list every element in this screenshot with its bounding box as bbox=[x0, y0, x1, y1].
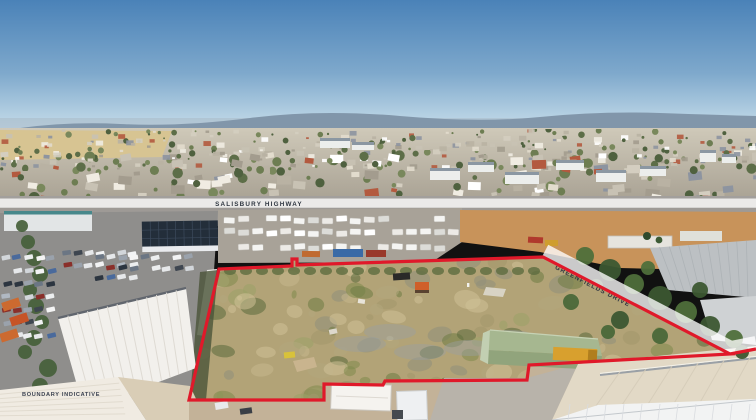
scenery bbox=[557, 139, 561, 142]
scenery bbox=[288, 167, 291, 170]
scenery bbox=[242, 147, 250, 152]
scenery bbox=[260, 149, 263, 151]
scenery bbox=[396, 183, 402, 187]
caravan bbox=[322, 244, 333, 250]
caravan bbox=[266, 215, 277, 221]
scenery bbox=[169, 141, 175, 147]
scenery bbox=[409, 135, 415, 141]
scenery bbox=[632, 148, 639, 153]
scenery bbox=[2, 139, 9, 144]
scenery bbox=[145, 160, 150, 165]
scenery bbox=[0, 167, 3, 170]
scenery bbox=[513, 185, 522, 191]
shed-row bbox=[608, 236, 672, 248]
tree bbox=[692, 282, 708, 298]
salisbury-highway-band bbox=[0, 199, 756, 208]
scenery bbox=[118, 163, 122, 167]
scenery bbox=[87, 147, 92, 152]
scrub-row bbox=[432, 267, 444, 275]
scenery bbox=[658, 139, 663, 144]
site-sign bbox=[393, 272, 410, 280]
caravan bbox=[336, 243, 347, 249]
scenery bbox=[671, 166, 677, 170]
scenery bbox=[598, 158, 606, 163]
scenery bbox=[203, 141, 210, 146]
caravan bbox=[293, 218, 304, 225]
scenery bbox=[253, 140, 255, 142]
scenery bbox=[690, 166, 698, 174]
scenery bbox=[92, 165, 95, 167]
scenery bbox=[146, 129, 150, 133]
scenery bbox=[446, 144, 450, 147]
scenery bbox=[532, 160, 546, 169]
scenery bbox=[561, 156, 566, 160]
caravan bbox=[336, 231, 347, 237]
scenery bbox=[603, 188, 608, 191]
scenery bbox=[148, 133, 150, 135]
scrub-row bbox=[512, 267, 524, 275]
scrub-row bbox=[368, 267, 380, 275]
scenery bbox=[315, 143, 320, 147]
scenery bbox=[72, 179, 79, 186]
caravan bbox=[238, 244, 249, 250]
scenery bbox=[637, 154, 642, 157]
scenery bbox=[317, 132, 323, 138]
yellow-car bbox=[284, 351, 296, 358]
scenery bbox=[6, 134, 12, 138]
caravan bbox=[350, 229, 361, 235]
scenery bbox=[478, 136, 481, 138]
tree bbox=[563, 294, 579, 310]
scenery bbox=[416, 146, 422, 150]
scenery bbox=[306, 137, 309, 139]
scenery bbox=[158, 161, 164, 165]
caravan bbox=[224, 217, 235, 224]
scenery bbox=[685, 137, 687, 139]
caravan bbox=[392, 229, 403, 235]
scenery bbox=[482, 142, 488, 146]
scenery bbox=[18, 174, 24, 180]
scenery bbox=[359, 152, 368, 161]
scenery bbox=[695, 159, 699, 163]
scenery bbox=[303, 147, 306, 149]
scenery bbox=[407, 167, 415, 172]
scenery bbox=[19, 156, 24, 159]
scenery bbox=[177, 144, 185, 149]
caravan-yard bbox=[218, 208, 462, 263]
scenery bbox=[308, 154, 314, 158]
scrub-row bbox=[336, 267, 348, 275]
scenery bbox=[206, 131, 210, 133]
caravan bbox=[252, 244, 263, 251]
scenery bbox=[578, 131, 585, 138]
scenery bbox=[120, 150, 123, 152]
tree bbox=[18, 345, 32, 359]
scenery bbox=[633, 140, 639, 144]
scenery bbox=[312, 165, 314, 167]
scenery bbox=[269, 189, 279, 196]
scrub-row bbox=[528, 267, 540, 275]
scenery bbox=[529, 158, 533, 160]
scenery bbox=[402, 138, 406, 142]
scenery bbox=[490, 144, 495, 147]
scenery bbox=[172, 168, 182, 178]
scenery bbox=[510, 157, 523, 165]
caravan bbox=[392, 243, 403, 250]
scenery bbox=[557, 188, 565, 196]
scenery bbox=[657, 178, 671, 187]
scenery bbox=[553, 139, 556, 141]
scenery bbox=[234, 168, 243, 177]
scenery bbox=[104, 166, 109, 171]
scenery bbox=[271, 133, 273, 135]
scenery bbox=[351, 172, 359, 177]
scenery bbox=[652, 128, 658, 134]
caravan bbox=[238, 230, 249, 236]
palm-tree bbox=[643, 232, 651, 240]
scenery bbox=[98, 147, 104, 153]
scenery bbox=[18, 150, 23, 155]
scenery bbox=[293, 181, 306, 190]
scenery bbox=[643, 157, 646, 159]
scenery bbox=[195, 130, 197, 132]
scenery bbox=[439, 146, 446, 151]
caravan bbox=[308, 231, 319, 237]
apartment-roof bbox=[700, 150, 716, 153]
scenery bbox=[180, 149, 186, 153]
scenery bbox=[188, 158, 190, 160]
scenery bbox=[297, 163, 300, 165]
red-container bbox=[528, 237, 543, 244]
tree bbox=[641, 261, 655, 275]
scenery bbox=[96, 141, 103, 146]
scenery bbox=[15, 157, 19, 160]
scenery bbox=[451, 132, 453, 134]
scenery bbox=[118, 140, 124, 144]
scenery bbox=[608, 152, 617, 161]
scenery bbox=[666, 166, 669, 169]
caravan bbox=[294, 230, 305, 236]
scenery bbox=[599, 144, 603, 147]
scenery bbox=[305, 158, 314, 164]
scenery bbox=[297, 151, 304, 156]
scenery bbox=[213, 152, 219, 156]
scenery bbox=[472, 147, 479, 151]
scenery bbox=[455, 143, 461, 147]
scenery bbox=[594, 137, 602, 142]
scenery bbox=[655, 154, 663, 162]
scenery bbox=[48, 136, 52, 139]
scenery bbox=[503, 136, 510, 141]
scenery bbox=[372, 136, 376, 139]
scenery bbox=[75, 152, 80, 157]
apartment-roof bbox=[505, 172, 539, 175]
scenery bbox=[609, 144, 615, 150]
scenery bbox=[521, 142, 524, 145]
caravan bbox=[308, 217, 319, 223]
scenery bbox=[707, 140, 713, 146]
scenery bbox=[220, 152, 225, 155]
caravan bbox=[252, 228, 263, 235]
scenery bbox=[306, 176, 310, 180]
scenery bbox=[372, 161, 378, 167]
caravan bbox=[224, 228, 235, 234]
scenery bbox=[22, 165, 28, 171]
scenery bbox=[468, 182, 481, 190]
scenery bbox=[189, 150, 195, 156]
apartment-roof bbox=[468, 162, 494, 165]
caravan bbox=[406, 229, 417, 235]
scenery bbox=[92, 135, 98, 139]
scenery bbox=[61, 189, 68, 196]
scenery bbox=[34, 149, 39, 154]
scrub-row bbox=[304, 267, 316, 275]
scenery bbox=[99, 155, 103, 158]
scrub-row bbox=[480, 267, 492, 275]
scenery bbox=[163, 137, 165, 139]
scenery bbox=[106, 129, 111, 134]
showroom-roof bbox=[142, 220, 218, 248]
scenery bbox=[154, 188, 158, 192]
scenery bbox=[220, 157, 228, 162]
scenery bbox=[512, 142, 518, 146]
apartment-roof bbox=[596, 170, 626, 173]
scenery bbox=[327, 158, 333, 164]
tree bbox=[16, 220, 28, 232]
scenery bbox=[351, 139, 356, 142]
caravan bbox=[420, 244, 431, 250]
scenery bbox=[583, 158, 593, 168]
scenery bbox=[508, 153, 512, 156]
scenery bbox=[586, 168, 593, 175]
scenery bbox=[544, 148, 546, 150]
scenery bbox=[682, 157, 688, 161]
scenery bbox=[196, 163, 202, 167]
boundary-disclaimer-label: BOUNDARY INDICATIVE bbox=[22, 392, 100, 398]
apartment-roof bbox=[722, 154, 736, 157]
tree bbox=[652, 328, 668, 344]
scenery bbox=[442, 154, 447, 157]
scenery bbox=[564, 131, 569, 134]
scenery bbox=[723, 185, 734, 193]
scenery bbox=[276, 167, 284, 175]
scenery bbox=[322, 159, 327, 162]
scenery bbox=[653, 146, 658, 149]
scenery bbox=[453, 183, 461, 191]
scenery bbox=[717, 136, 722, 139]
caravan bbox=[280, 245, 291, 251]
scenery bbox=[384, 164, 387, 167]
scenery bbox=[577, 143, 582, 146]
scenery bbox=[171, 185, 185, 194]
caravan bbox=[238, 216, 249, 222]
scenery bbox=[134, 171, 140, 175]
yellow-container bbox=[545, 240, 558, 246]
caravan bbox=[420, 228, 431, 234]
scenery bbox=[514, 165, 518, 169]
caravan bbox=[448, 229, 459, 236]
scenery bbox=[292, 149, 295, 151]
scenery bbox=[33, 164, 38, 168]
scenery bbox=[408, 148, 411, 151]
stony-ground bbox=[364, 324, 416, 340]
scenery bbox=[347, 165, 353, 169]
scenery bbox=[118, 134, 125, 139]
scenery bbox=[147, 145, 151, 147]
scenery bbox=[11, 162, 17, 168]
scenery bbox=[664, 159, 669, 164]
scenery bbox=[87, 168, 91, 172]
caravan bbox=[350, 218, 361, 225]
scenery bbox=[172, 157, 175, 159]
scenery bbox=[700, 165, 705, 170]
scenery bbox=[18, 146, 20, 148]
caravan bbox=[308, 246, 319, 252]
scenery bbox=[36, 135, 40, 138]
scenery bbox=[66, 153, 72, 159]
scenery bbox=[260, 187, 267, 194]
scenery bbox=[43, 155, 49, 159]
scenery bbox=[586, 139, 592, 143]
scenery bbox=[247, 166, 252, 171]
scenery bbox=[528, 140, 530, 142]
scenery bbox=[87, 142, 92, 145]
apartment-roof bbox=[352, 142, 374, 145]
scenery bbox=[732, 146, 736, 148]
scenery bbox=[65, 131, 71, 137]
tree bbox=[39, 359, 57, 377]
aerial-photo: SALISBURY HIGHWAY GREENFIELDS DRIVE BOUN… bbox=[0, 0, 756, 420]
scenery bbox=[118, 176, 132, 185]
scrub-row bbox=[496, 267, 508, 275]
scenery bbox=[480, 129, 484, 133]
scenery bbox=[670, 158, 676, 162]
scenery bbox=[476, 134, 478, 136]
caravan bbox=[364, 229, 375, 235]
scenery bbox=[641, 136, 644, 139]
caravan bbox=[280, 228, 291, 235]
scenery bbox=[379, 142, 381, 144]
scenery bbox=[416, 136, 422, 140]
scrub-row bbox=[416, 267, 428, 275]
scenery bbox=[290, 158, 295, 163]
scenery bbox=[150, 139, 155, 142]
scenery bbox=[722, 131, 726, 135]
scenery bbox=[28, 182, 38, 189]
caravan bbox=[294, 243, 305, 250]
scenery bbox=[608, 189, 618, 196]
scenery bbox=[277, 176, 291, 185]
scenery bbox=[677, 135, 684, 139]
scenery bbox=[272, 157, 281, 166]
scenery bbox=[50, 160, 57, 164]
scenery bbox=[163, 155, 170, 160]
scenery bbox=[295, 132, 298, 134]
scenery bbox=[497, 147, 505, 152]
scenery bbox=[528, 129, 534, 133]
scenery bbox=[191, 133, 197, 137]
scenery bbox=[387, 161, 392, 166]
apartment-roof bbox=[320, 138, 350, 141]
caravan bbox=[322, 228, 333, 235]
scenery bbox=[382, 137, 387, 140]
scrub-row bbox=[288, 267, 300, 275]
scrub-row bbox=[352, 267, 364, 275]
caravan bbox=[434, 229, 445, 235]
scenery bbox=[261, 137, 268, 142]
palm-tree bbox=[656, 237, 663, 244]
scenery bbox=[627, 165, 640, 173]
scenery bbox=[0, 152, 8, 157]
caravan bbox=[378, 216, 389, 223]
scenery bbox=[392, 183, 396, 187]
scenery bbox=[171, 179, 177, 185]
scenery bbox=[577, 149, 583, 155]
caravan bbox=[322, 218, 333, 224]
scrub-row bbox=[448, 267, 460, 275]
scenery bbox=[364, 170, 378, 179]
scenery bbox=[749, 146, 755, 150]
scenery bbox=[387, 140, 391, 142]
scenery bbox=[563, 136, 567, 140]
apartment-roof bbox=[430, 168, 460, 171]
scenery bbox=[150, 166, 159, 175]
caravan bbox=[266, 230, 277, 237]
scenery bbox=[233, 130, 239, 134]
scenery bbox=[262, 153, 268, 157]
scenery bbox=[365, 165, 368, 167]
scenery bbox=[168, 149, 171, 152]
apartment-roof bbox=[640, 166, 666, 169]
scenery bbox=[256, 166, 264, 174]
scenery bbox=[158, 131, 161, 134]
scrub-row bbox=[464, 267, 476, 275]
scenery bbox=[497, 188, 502, 193]
scenery bbox=[552, 131, 556, 135]
scenery bbox=[142, 163, 145, 166]
caravan bbox=[336, 215, 347, 221]
red-container bbox=[366, 250, 386, 257]
scenery bbox=[171, 130, 177, 136]
aerial-photo-canvas: SALISBURY HIGHWAY GREENFIELDS DRIVE BOUN… bbox=[0, 0, 756, 420]
scenery bbox=[47, 143, 52, 146]
scenery bbox=[76, 162, 85, 171]
scenery bbox=[622, 138, 626, 142]
scenery bbox=[598, 153, 606, 158]
stony-ground bbox=[394, 344, 446, 360]
scenery bbox=[532, 144, 534, 146]
scenery bbox=[548, 184, 559, 191]
scenery bbox=[172, 160, 184, 168]
scenery bbox=[37, 184, 46, 193]
scenery bbox=[350, 131, 357, 136]
shed-row bbox=[680, 231, 722, 241]
scenery bbox=[519, 136, 526, 141]
scenery bbox=[673, 150, 677, 154]
caravan bbox=[378, 244, 389, 251]
scenery bbox=[718, 158, 722, 162]
scenery bbox=[498, 165, 503, 170]
scenery bbox=[256, 132, 261, 137]
scenery bbox=[742, 156, 749, 161]
scenery bbox=[469, 160, 472, 162]
scenery bbox=[135, 163, 140, 166]
scenery bbox=[283, 138, 289, 144]
scenery bbox=[637, 134, 641, 137]
scenery bbox=[136, 139, 143, 143]
scenery bbox=[466, 141, 474, 146]
scenery bbox=[745, 139, 750, 142]
